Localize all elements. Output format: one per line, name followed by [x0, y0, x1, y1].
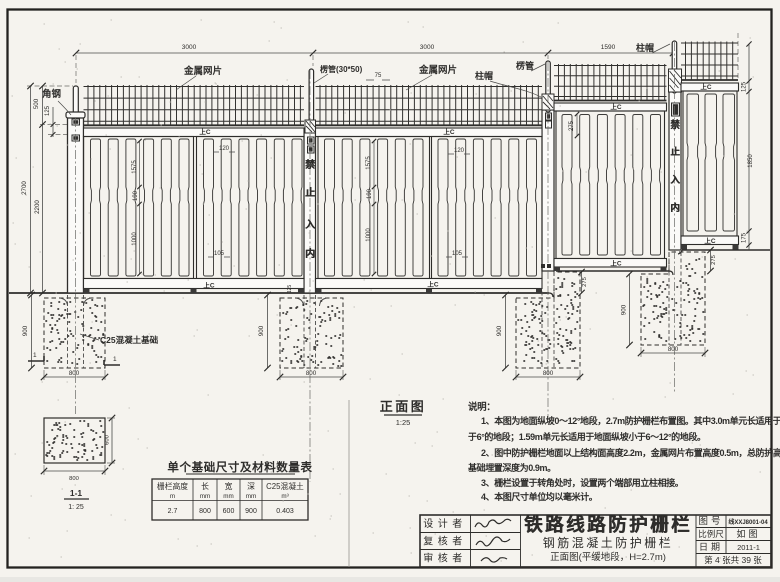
svg-text:2700: 2700	[21, 181, 28, 195]
svg-text:1850: 1850	[748, 154, 754, 168]
svg-text:金属网片: 金属网片	[418, 64, 457, 76]
svg-text:800: 800	[199, 508, 211, 515]
svg-text:上C: 上C	[203, 281, 215, 290]
svg-text:275: 275	[569, 120, 575, 131]
svg-text:175: 175	[742, 232, 748, 243]
svg-text:1000: 1000	[366, 228, 372, 242]
svg-text:入: 入	[670, 175, 681, 186]
svg-text:120: 120	[454, 148, 465, 154]
svg-text:600: 600	[105, 435, 111, 445]
svg-text:正面图: 正面图	[380, 399, 427, 414]
svg-text:mm: mm	[246, 493, 257, 500]
svg-text:正面图(平缓地段，H=2.7m): 正面图(平缓地段，H=2.7m)	[550, 551, 666, 563]
svg-text:105: 105	[214, 251, 225, 257]
svg-text:4、本图尺寸单位均以毫米计。: 4、本图尺寸单位均以毫米计。	[481, 491, 597, 502]
svg-text:800: 800	[306, 370, 317, 377]
svg-text:190: 190	[367, 188, 373, 199]
svg-text:m: m	[170, 493, 175, 500]
svg-text:800: 800	[668, 346, 679, 353]
svg-text:C25混凝土: C25混凝土	[266, 481, 304, 491]
svg-text:基础埋置深度为0.9m。: 基础埋置深度为0.9m。	[467, 462, 556, 473]
svg-text:75: 75	[375, 73, 382, 79]
svg-text:1: 25: 1: 25	[68, 504, 84, 511]
svg-text:上C: 上C	[610, 259, 622, 268]
svg-text:宽: 宽	[225, 481, 233, 491]
svg-text:上C: 上C	[443, 127, 455, 136]
svg-text:上C: 上C	[610, 102, 622, 111]
svg-text:上C: 上C	[427, 280, 439, 289]
svg-text:275: 275	[711, 255, 717, 265]
svg-text:190: 190	[133, 190, 139, 201]
svg-text:长: 长	[201, 481, 209, 491]
svg-text:柱帽: 柱帽	[636, 42, 654, 53]
svg-text:上C: 上C	[704, 236, 716, 245]
svg-text:1575: 1575	[366, 156, 372, 170]
svg-text:图号: 图号	[698, 516, 723, 527]
svg-text:柱帽: 柱帽	[475, 70, 493, 81]
svg-text:2、图中防护栅栏地面以上结构面高度2.2m，金属网片布置高度: 2、图中防护栅栏地面以上结构面高度2.2m，金属网片布置高度0.5m，总防护高度…	[481, 447, 780, 458]
svg-text:线XXJ8001-04: 线XXJ8001-04	[728, 518, 768, 526]
svg-text:2.7: 2.7	[168, 508, 178, 515]
svg-text:1-1: 1-1	[70, 488, 83, 498]
svg-text:800: 800	[69, 476, 79, 482]
svg-text:栅栏高度: 栅栏高度	[157, 481, 188, 491]
svg-text:入: 入	[306, 219, 316, 231]
svg-text:铁路线路防护栅栏: 铁路线路防护栅栏	[524, 514, 692, 535]
svg-text:120: 120	[219, 146, 230, 152]
svg-text:3000: 3000	[182, 44, 197, 51]
svg-text:内: 内	[306, 247, 316, 260]
svg-text:1: 1	[113, 356, 117, 363]
svg-text:楞管: 楞管	[516, 60, 534, 71]
svg-text:日期: 日期	[699, 542, 723, 552]
svg-text:600: 600	[223, 508, 235, 515]
svg-text:止: 止	[671, 146, 681, 158]
svg-text:900: 900	[245, 508, 257, 515]
svg-text:C25混凝土基础: C25混凝土基础	[100, 335, 159, 345]
svg-text:于6°的地段；1.59m单元长适用于地面纵坡小于6～12°的: 于6°的地段；1.59m单元长适用于地面纵坡小于6～12°的地段。	[468, 431, 706, 443]
svg-text:上C: 上C	[199, 127, 211, 136]
svg-text:内: 内	[671, 202, 681, 214]
svg-text:900: 900	[258, 325, 265, 336]
svg-text:800: 800	[543, 370, 554, 377]
svg-text:500: 500	[33, 98, 40, 109]
svg-text:125: 125	[742, 81, 748, 92]
svg-text:2200: 2200	[34, 200, 41, 214]
svg-text:900: 900	[621, 304, 628, 315]
svg-text:深: 深	[247, 482, 255, 491]
svg-text:1、本图为地面纵坡0～12°地段，2.7m防护栅栏布置图。其: 1、本图为地面纵坡0～12°地段，2.7m防护栅栏布置图。其中3.0m单元长适用…	[481, 415, 780, 426]
svg-text:复核者: 复核者	[423, 535, 467, 548]
svg-text:禁: 禁	[305, 158, 316, 171]
svg-text:禁: 禁	[670, 119, 681, 131]
svg-text:止: 止	[306, 186, 316, 199]
svg-text:105: 105	[452, 251, 463, 257]
svg-text:审核者: 审核者	[423, 552, 467, 565]
svg-text:第 4 张共 39 张: 第 4 张共 39 张	[704, 555, 762, 565]
svg-text:如图: 如图	[736, 528, 760, 539]
svg-text:mm: mm	[200, 493, 211, 500]
svg-text:比例尺: 比例尺	[698, 529, 724, 539]
svg-text:单个基础尺寸及材料数量表: 单个基础尺寸及材料数量表	[167, 460, 312, 474]
svg-text:1590: 1590	[601, 44, 616, 51]
svg-text:3000: 3000	[420, 44, 435, 51]
svg-text:1000: 1000	[132, 232, 138, 246]
svg-text:楞管(30*50): 楞管(30*50)	[320, 64, 363, 74]
svg-text:1: 1	[33, 352, 37, 359]
svg-text:1:25: 1:25	[396, 418, 411, 427]
svg-text:275: 275	[582, 277, 588, 287]
svg-text:0.403: 0.403	[276, 508, 294, 515]
svg-text:125: 125	[287, 285, 293, 294]
svg-text:800: 800	[69, 370, 80, 377]
svg-text:上C: 上C	[700, 82, 712, 91]
svg-text:125: 125	[45, 105, 51, 116]
svg-text:900: 900	[496, 325, 503, 336]
svg-text:1575: 1575	[132, 160, 138, 174]
svg-text:钢筋混凝土防护栅栏: 钢筋混凝土防护栅栏	[543, 535, 674, 550]
svg-text:3、栅栏设置于转角处时，设置两个端部用立柱相接。: 3、栅栏设置于转角处时，设置两个端部用立柱相接。	[481, 477, 683, 488]
svg-text:mm: mm	[223, 493, 234, 500]
svg-text:m³: m³	[281, 493, 288, 500]
svg-text:900: 900	[22, 325, 29, 336]
svg-text:角钢: 角钢	[42, 88, 62, 100]
svg-text:2011-1: 2011-1	[737, 543, 760, 552]
svg-text:说明：: 说明：	[468, 401, 495, 413]
svg-text:金属网片: 金属网片	[183, 65, 222, 77]
